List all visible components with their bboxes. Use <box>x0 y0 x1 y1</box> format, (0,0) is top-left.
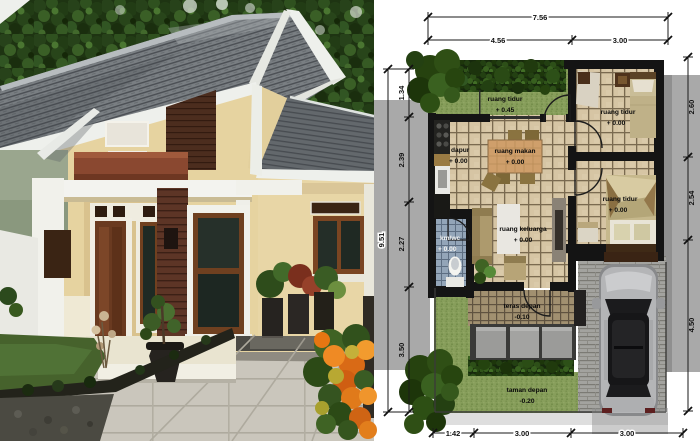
svg-text:2.54: 2.54 <box>687 190 696 205</box>
svg-text:3.00: 3.00 <box>613 36 628 45</box>
svg-text:4.50: 4.50 <box>687 318 696 333</box>
svg-text:+ 0.00: + 0.00 <box>607 120 626 127</box>
svg-text:3.00: 3.00 <box>620 429 635 438</box>
svg-text:3.50: 3.50 <box>397 343 406 358</box>
svg-text:taman depan: taman depan <box>507 387 548 394</box>
svg-text:+ 0.00: + 0.00 <box>514 237 533 244</box>
svg-text:+ 0.00: + 0.00 <box>609 207 628 214</box>
svg-text:2.39: 2.39 <box>397 153 406 168</box>
svg-text:2.27: 2.27 <box>397 237 406 252</box>
svg-text:teras depan: teras depan <box>503 303 540 310</box>
svg-text:-0.20: -0.20 <box>519 398 534 405</box>
svg-text:ruang tidur: ruang tidur <box>488 96 523 103</box>
svg-text:1.42: 1.42 <box>446 429 461 438</box>
svg-text:+ 0.45: + 0.45 <box>496 107 515 114</box>
svg-text:9.51: 9.51 <box>377 233 386 248</box>
svg-text:ruang tidur: ruang tidur <box>603 196 638 203</box>
svg-text:2.60: 2.60 <box>687 100 696 115</box>
svg-text:7.56: 7.56 <box>533 13 548 22</box>
svg-text:+ 0.00: + 0.00 <box>438 246 457 253</box>
svg-text:+ 0.00: + 0.00 <box>506 159 525 166</box>
svg-text:dapur: dapur <box>451 147 470 154</box>
svg-text:3.00: 3.00 <box>515 429 530 438</box>
svg-text:+ 0.00: + 0.00 <box>449 158 468 165</box>
svg-text:4.56: 4.56 <box>491 36 506 45</box>
svg-text:km/wc: km/wc <box>440 235 460 242</box>
svg-text:ruang keluarga: ruang keluarga <box>499 226 547 233</box>
svg-text:1.34: 1.34 <box>397 85 406 100</box>
svg-text:-0.10: -0.10 <box>514 314 529 321</box>
svg-text:ruang makan: ruang makan <box>494 148 535 155</box>
svg-text:ruang tidur: ruang tidur <box>601 109 636 116</box>
